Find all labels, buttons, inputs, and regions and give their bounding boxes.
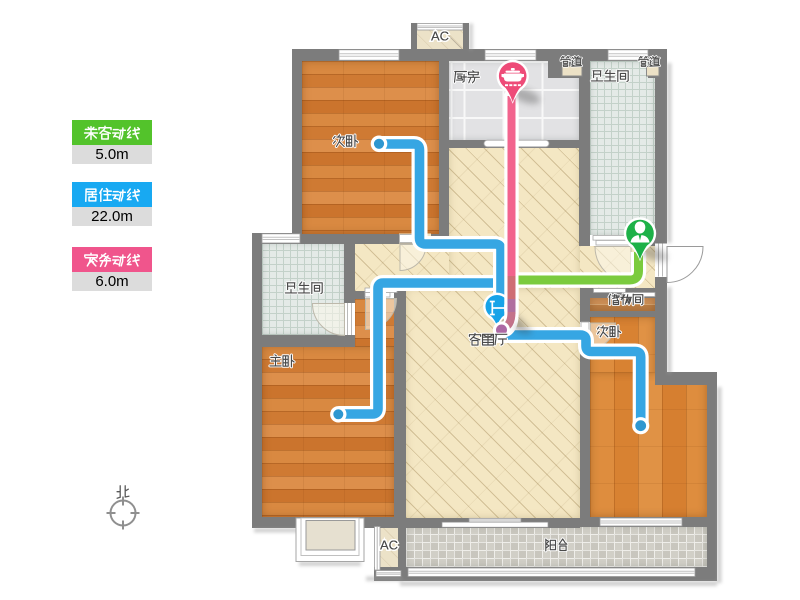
svg-text:AC: AC (431, 29, 449, 44)
svg-text:AC: AC (380, 538, 398, 553)
